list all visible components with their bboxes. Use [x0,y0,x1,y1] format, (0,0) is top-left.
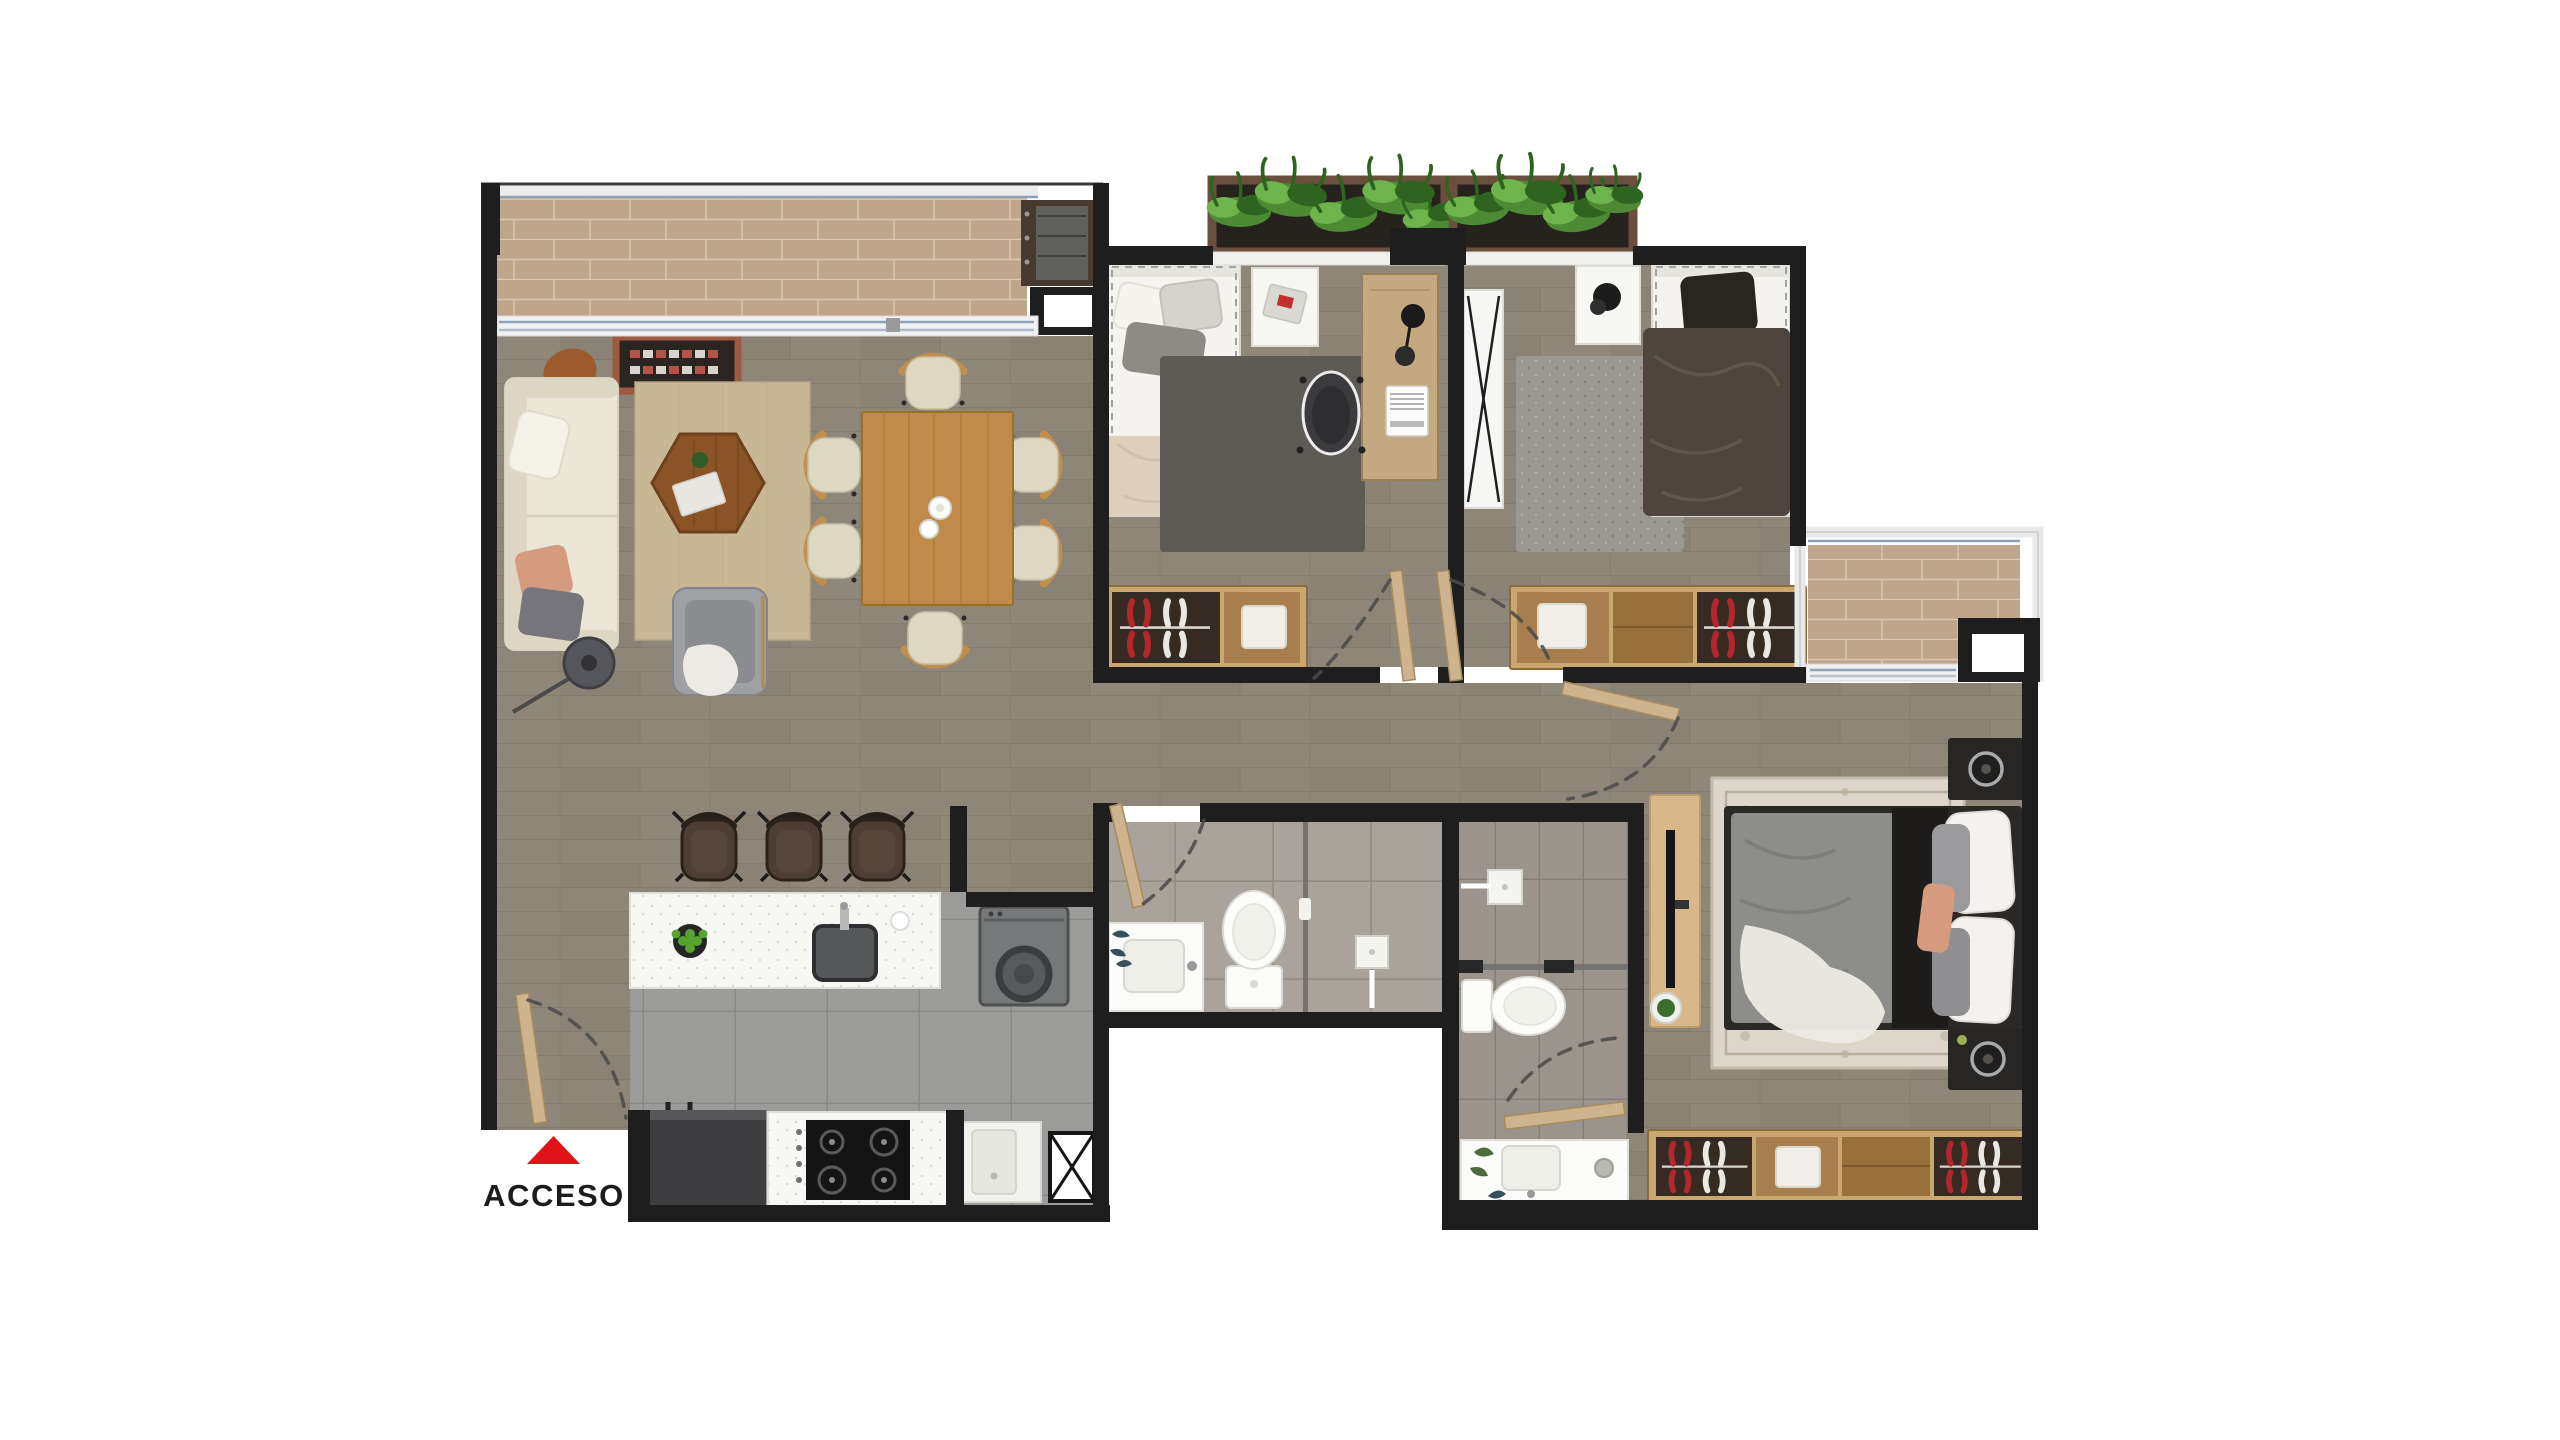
bar-stool [758,812,830,881]
wall-laundry-stub [950,806,967,892]
sofa [505,378,618,650]
bedroom2-bed [1643,263,1790,516]
washing-machine [980,907,1068,1005]
pillow-dark [1680,271,1759,337]
master-window-band [1806,664,1960,681]
table-plant [692,452,708,468]
corridor-floor [1093,683,1628,806]
wall-bedroom2-top [1633,246,1806,265]
master-nightstand-top [1948,738,2024,800]
planter-2 [1441,150,1645,252]
ac-unit [1021,200,1093,286]
service-shaft-window [1030,287,1100,335]
wall-bath-divider [1442,803,1459,1230]
island-cup [891,912,909,930]
dining-chair [808,434,860,497]
dining-chair [902,357,965,409]
master-balcony [1800,532,2040,682]
folded-linen [1242,606,1286,648]
master-nightstand-bottom [1948,1028,2028,1090]
folded-linen [1538,604,1586,648]
service-shaft [1050,1133,1094,1201]
bedroom1-wardrobe [1105,586,1307,669]
bedroom2-desk [1464,290,1503,508]
toilet-1 [1223,891,1285,1008]
apartment-floor-plan: ACCESO [0,0,2560,1440]
laundry-sink [963,1122,1041,1202]
bar-stool [673,812,745,881]
bathroom1-vanity [1109,923,1203,1011]
kitchen-island [630,893,940,988]
wall-kitchen-bottom [628,1205,1110,1222]
wall-bath1-bottom [1093,1012,1442,1028]
fridge [650,1102,766,1206]
laptop-icon [1386,386,1428,436]
floor-plan-page: ACCESO [0,0,2560,1440]
wall-entry-stub [628,1110,650,1208]
balcony-shaft [1958,618,2040,682]
bedroom1-desk [1362,274,1438,480]
wall-between-windows [1390,228,1466,265]
window-handle [886,318,900,332]
window-sill-2 [1453,252,1633,265]
stove-counter [768,1112,950,1206]
vanity-dish [1595,1159,1613,1177]
wall-bedroom1-top [1093,246,1213,265]
wall-laundry-bar [966,892,1093,907]
bedroom2-wardrobe [1510,586,1806,669]
red-triangle-up-icon [527,1136,580,1164]
folded-linen [1776,1147,1820,1187]
dining-chair [808,520,860,583]
wall-top-left-post [481,183,500,255]
cup [920,520,938,538]
desk-lamp-icon [1401,304,1425,328]
wall-bedroom2-right [1790,246,1806,546]
wall-bath2-right [1628,822,1644,1133]
bathroom2-vanity [1461,1140,1628,1208]
bar-stool [841,812,913,881]
bedroom2-nightstand [1576,266,1640,344]
wall-bath-top-b [1200,803,1644,822]
dining-chair [904,612,967,664]
pillow-gray [517,586,585,642]
gas-hob [796,1120,910,1200]
wall-bottom-right [1442,1200,2038,1230]
wall-bedrooms-bottom-a [1093,667,1380,683]
armchair [673,588,767,696]
wall-master-right [2022,676,2038,1230]
wall-bedrooms-bottom-b [1563,667,1806,683]
master-bed [1724,806,2022,1043]
pillow [1159,278,1223,334]
master-closet [1648,1130,2028,1203]
tv-icon [1666,830,1675,988]
living-window-band [497,316,1038,336]
duvet [1643,328,1790,516]
wall-stove-stub [946,1110,964,1206]
tv-console [1650,795,1700,1027]
acceso-label: ACCESO [483,1136,625,1213]
dining-table [862,412,1013,605]
acceso-text: ACCESO [483,1178,625,1213]
balcony-tiles [497,198,1027,316]
wall-left [481,183,497,1130]
bedroom1-nightstand [1252,268,1318,346]
toilet-2 [1462,977,1565,1035]
